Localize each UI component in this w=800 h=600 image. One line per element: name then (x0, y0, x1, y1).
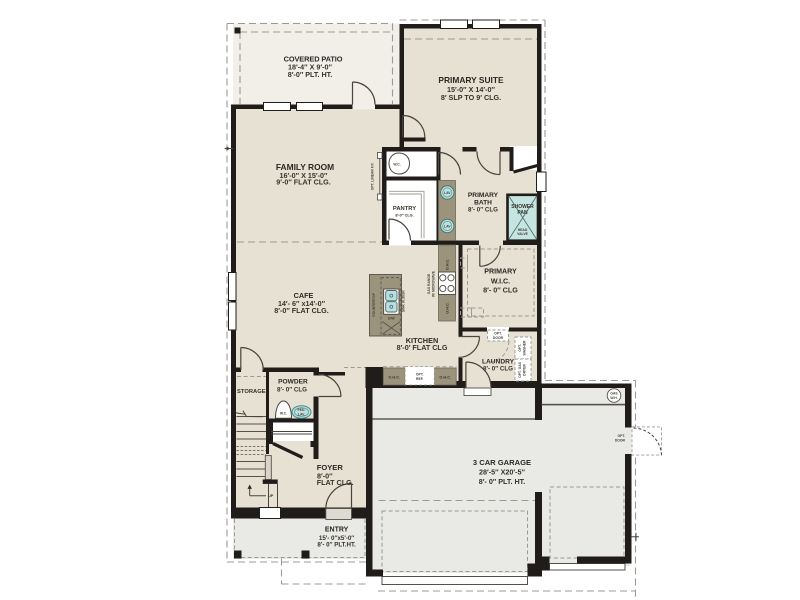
svg-text:D/W: D/W (388, 316, 395, 320)
svg-text:DOOR: DOOR (493, 336, 504, 340)
svg-text:VALVE: VALVE (517, 232, 529, 236)
svg-text:8′- 0″ PLT. HT.: 8′- 0″ PLT. HT. (479, 477, 526, 486)
svg-text:UP: UP (268, 494, 274, 498)
svg-text:OPT. LINEAR F.P.: OPT. LINEAR F.P. (371, 163, 375, 191)
svg-text:8′- 0″ PLT.HT.: 8′- 0″ PLT.HT. (317, 542, 356, 549)
svg-text:8′- 0″ CLG: 8′- 0″ CLG (468, 206, 498, 213)
svg-text:OPT.: OPT. (494, 332, 502, 336)
svg-text:O.H.C.: O.H.C. (439, 376, 451, 380)
svg-text:O.H.C.: O.H.C. (446, 259, 450, 271)
svg-text:9′-0″ FLAT CLG.: 9′-0″ FLAT CLG. (276, 178, 331, 187)
svg-text:PANTRY: PANTRY (393, 206, 416, 212)
svg-text:OPT.: OPT. (518, 344, 522, 352)
svg-text:O.H.C.: O.H.C. (446, 302, 450, 314)
svg-text:W.C.: W.C. (280, 412, 287, 416)
svg-text:LAV: LAV (444, 225, 451, 229)
svg-text:8′- 0″ CLG: 8′- 0″ CLG (483, 286, 518, 295)
svg-text:28′-5″ X20′-5″: 28′-5″ X20′-5″ (479, 468, 525, 477)
svg-text:SINK W./DISP.: SINK W./DISP. (402, 290, 406, 313)
svg-text:OPT.: OPT. (416, 373, 424, 377)
svg-text:LAV.: LAV. (298, 412, 305, 416)
svg-text:LAV: LAV (444, 191, 451, 195)
svg-text:PRIMARY: PRIMARY (484, 268, 517, 276)
svg-text:LAUNDRY: LAUNDRY (482, 359, 515, 366)
svg-text:PAN: PAN (517, 210, 528, 216)
svg-text:COUNTERTOP: COUNTERTOP (372, 292, 376, 316)
svg-text:PRIMARY: PRIMARY (468, 192, 499, 199)
svg-text:8′-0″ FLAT CLG.: 8′-0″ FLAT CLG. (274, 306, 329, 315)
svg-text:8′-0″ PLT. HT.: 8′-0″ PLT. HT. (288, 70, 333, 79)
svg-text:GAS RANGE: GAS RANGE (427, 273, 431, 294)
svg-text:ENTRY: ENTRY (325, 527, 349, 534)
svg-text:OPT. GAS: OPT. GAS (518, 361, 522, 378)
svg-text:W.C.: W.C. (393, 163, 400, 167)
svg-text:PRIMARY SUITE: PRIMARY SUITE (438, 75, 504, 85)
svg-text:FLAT CLG.: FLAT CLG. (317, 478, 354, 487)
svg-text:WASHER: WASHER (523, 340, 527, 355)
svg-text:REF.: REF. (416, 377, 423, 381)
svg-text:3 CAR GARAGE: 3 CAR GARAGE (473, 458, 531, 467)
svg-text:STORAGE: STORAGE (237, 389, 266, 395)
svg-text:DRYER: DRYER (523, 364, 527, 376)
svg-text:W.I.C.: W.I.C. (491, 278, 510, 286)
svg-text:W/ MICROWAVE: W/ MICROWAVE (432, 270, 436, 297)
svg-text:POWDER: POWDER (278, 379, 308, 386)
svg-text:DOOR: DOOR (615, 439, 626, 443)
svg-text:W.H.: W.H. (610, 396, 617, 400)
svg-text:8′ SLP TO 9′ CLG.: 8′ SLP TO 9′ CLG. (441, 93, 501, 102)
svg-text:O.H.C.: O.H.C. (388, 376, 400, 380)
svg-text:8′- 0″ CLG: 8′- 0″ CLG (277, 387, 307, 394)
svg-text:8′-0″ CLG.: 8′-0″ CLG. (395, 214, 413, 218)
svg-text:OPT.: OPT. (617, 434, 625, 438)
svg-text:8′- 0″ CLG: 8′- 0″ CLG (483, 366, 513, 373)
svg-text:8′-0′ FLAT CLG: 8′-0′ FLAT CLG (397, 343, 448, 352)
